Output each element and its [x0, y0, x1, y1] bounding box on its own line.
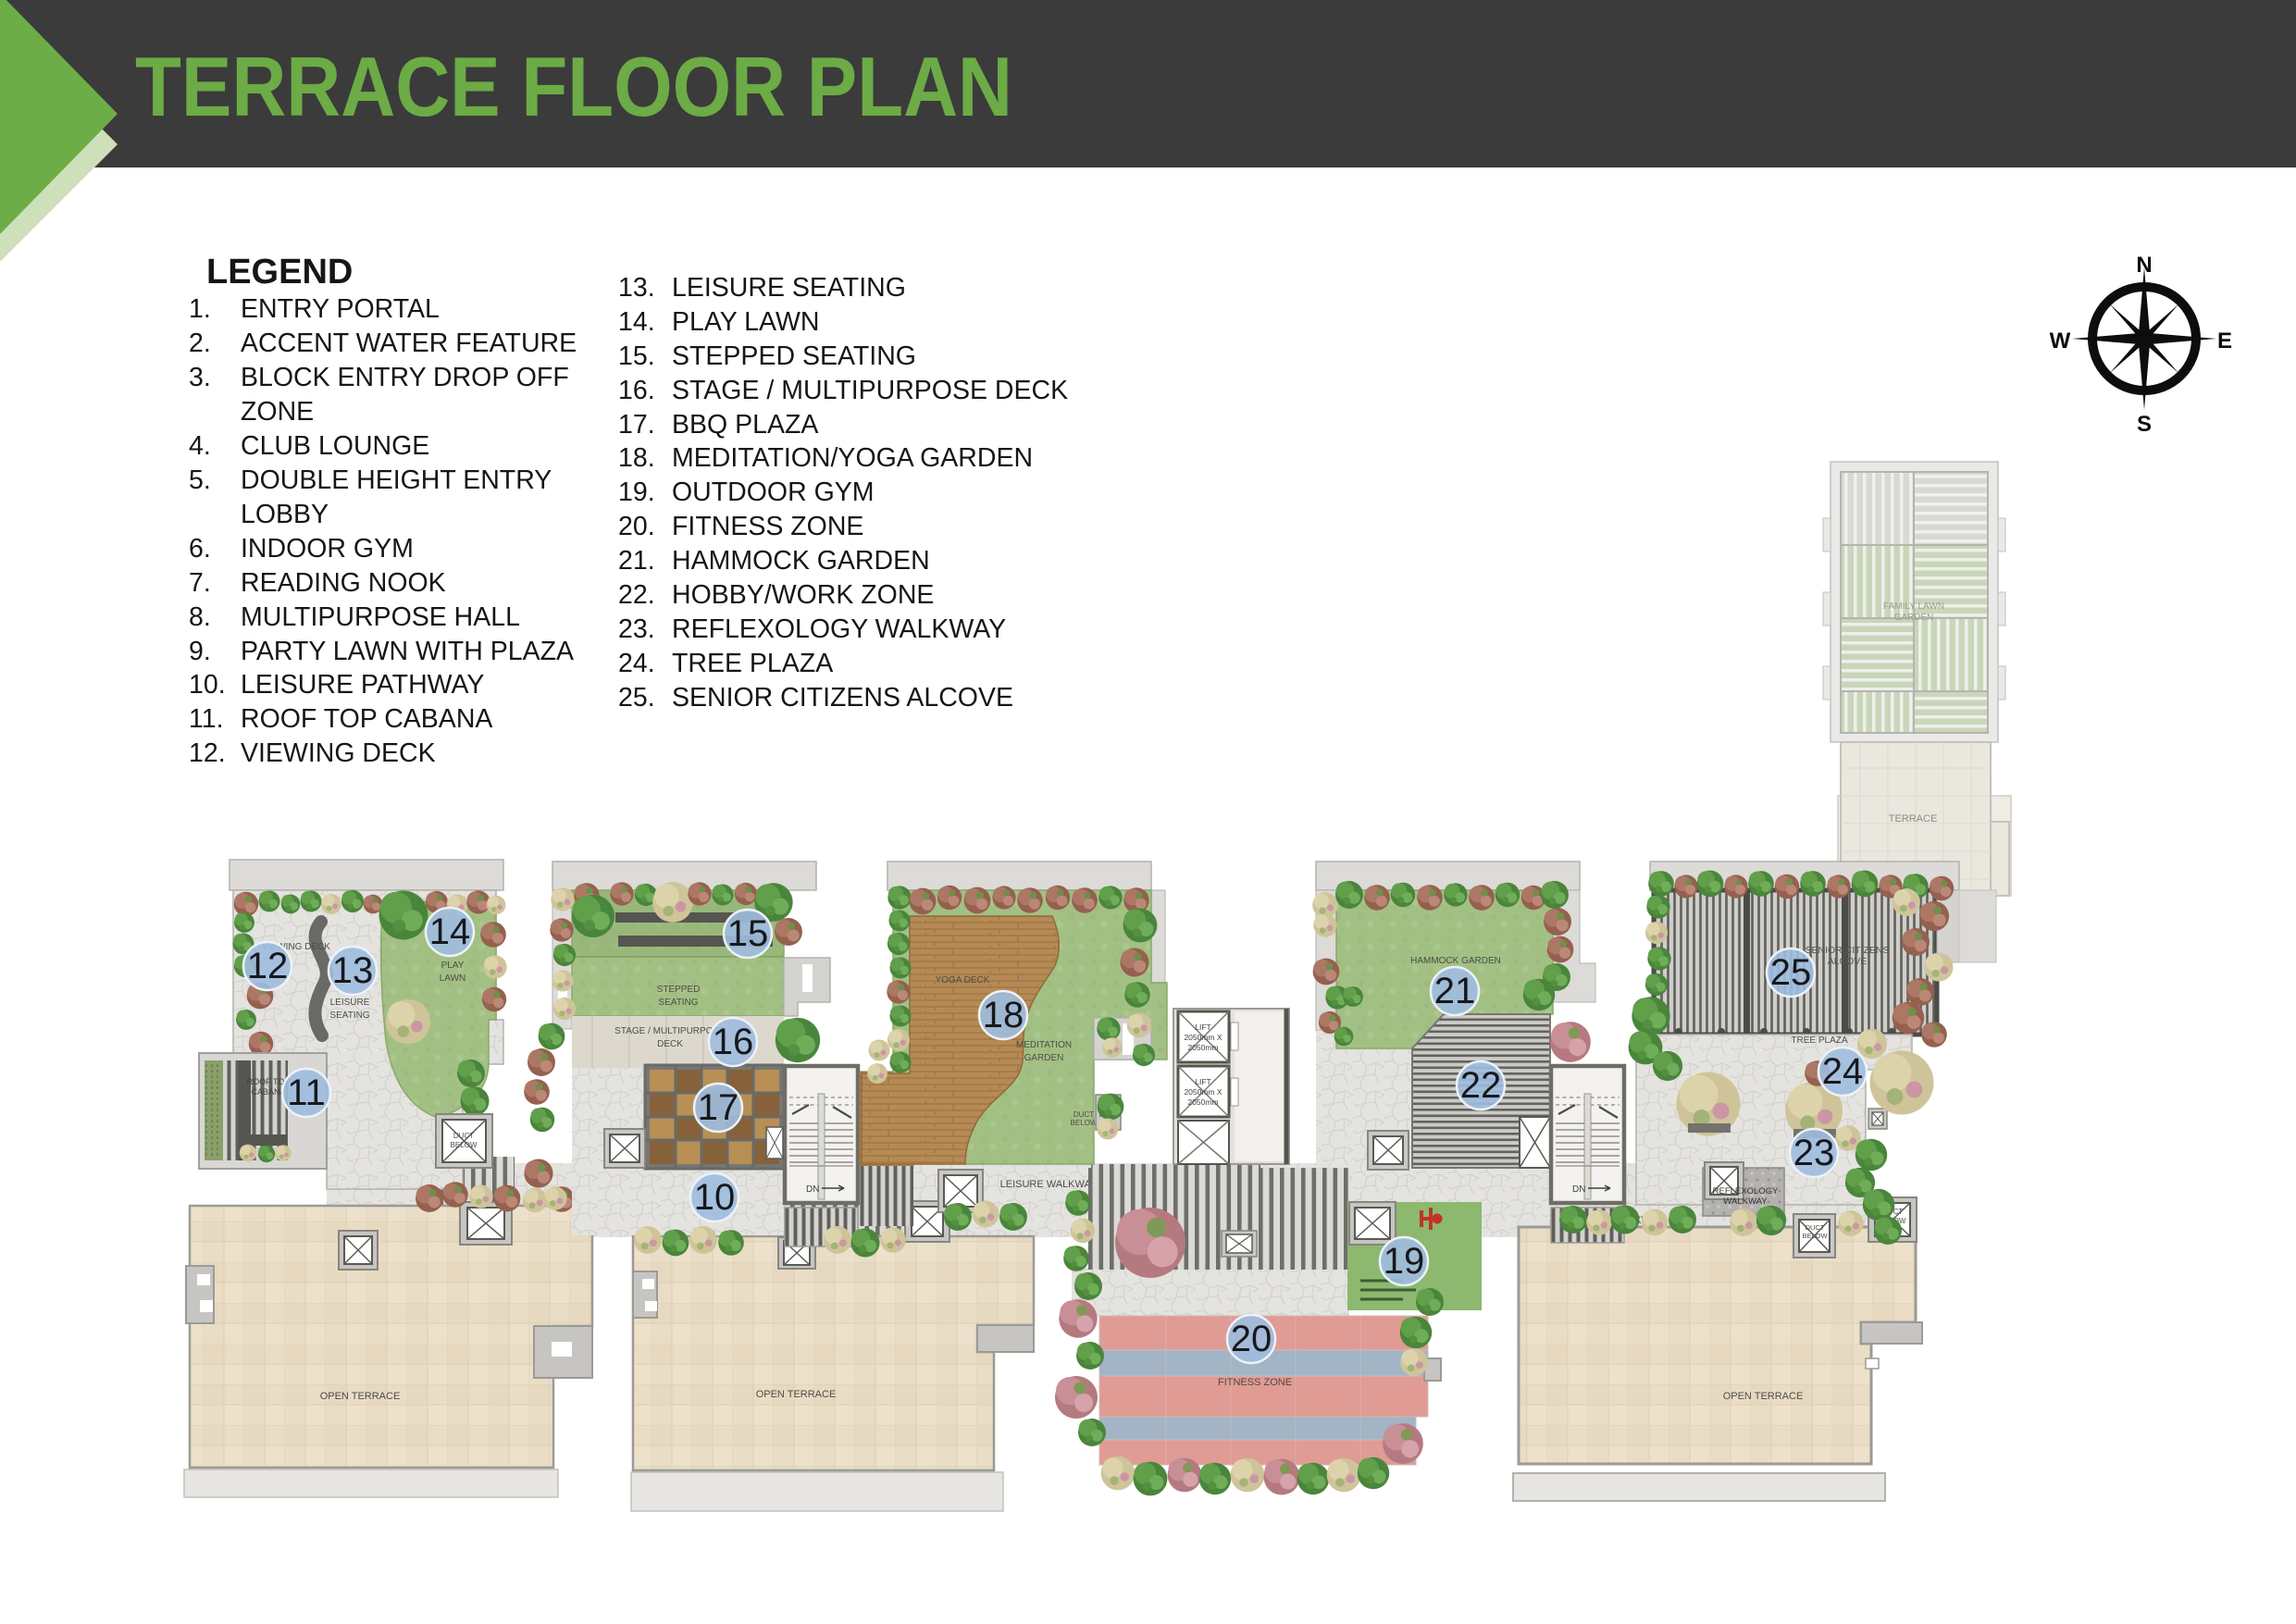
svg-text:25.: 25. — [618, 683, 655, 713]
svg-text:ALCOVE: ALCOVE — [1828, 956, 1868, 967]
svg-text:18: 18 — [983, 995, 1024, 1035]
svg-text:22.: 22. — [618, 580, 655, 610]
svg-text:17: 17 — [698, 1087, 739, 1128]
svg-text:OPEN TERRACE: OPEN TERRACE — [756, 1389, 837, 1400]
svg-text:23.: 23. — [618, 614, 655, 644]
svg-text:BLOCK ENTRY DROP OFF: BLOCK ENTRY DROP OFF — [241, 363, 569, 392]
svg-text:11: 11 — [287, 1072, 326, 1113]
svg-text:GARDEN: GARDEN — [1894, 613, 1934, 623]
svg-text:YOGA DECK: YOGA DECK — [936, 975, 990, 986]
svg-text:2050mm: 2050mm — [1187, 1043, 1218, 1052]
svg-text:8.: 8. — [189, 602, 211, 632]
svg-text:13: 13 — [332, 950, 374, 991]
svg-text:ZONE: ZONE — [241, 397, 314, 427]
svg-text:OUTDOOR GYM: OUTDOOR GYM — [672, 477, 875, 507]
svg-text:SEATING: SEATING — [329, 1010, 369, 1021]
svg-text:2050mm X: 2050mm X — [1184, 1033, 1222, 1042]
svg-text:DECK: DECK — [657, 1039, 683, 1049]
svg-text:20: 20 — [1231, 1319, 1272, 1359]
svg-text:OPEN TERRACE: OPEN TERRACE — [320, 1391, 401, 1402]
svg-text:MEDITATION: MEDITATION — [1016, 1040, 1072, 1050]
svg-text:ENTRY PORTAL: ENTRY PORTAL — [241, 294, 440, 324]
svg-text:21: 21 — [1434, 971, 1476, 1011]
svg-text:LEISURE PATHWAY: LEISURE PATHWAY — [241, 670, 484, 700]
svg-text:INDOOR GYM: INDOOR GYM — [241, 534, 414, 564]
svg-text:2050mm X: 2050mm X — [1184, 1087, 1222, 1097]
svg-text:FITNESS ZONE: FITNESS ZONE — [672, 512, 863, 541]
svg-text:MULTIPURPOSE HALL: MULTIPURPOSE HALL — [241, 602, 520, 632]
svg-text:7.: 7. — [189, 568, 211, 598]
svg-text:3.: 3. — [189, 363, 211, 392]
svg-text:LAWN: LAWN — [440, 973, 466, 984]
svg-text:GARDEN: GARDEN — [1024, 1053, 1064, 1063]
svg-text:LOBBY: LOBBY — [241, 500, 329, 529]
svg-text:DUCT: DUCT — [1806, 1223, 1825, 1232]
svg-text:SEATING: SEATING — [658, 998, 698, 1008]
svg-text:LEISURE WALKWAY: LEISURE WALKWAY — [1000, 1179, 1098, 1190]
svg-text:19: 19 — [1384, 1241, 1425, 1282]
svg-text:2050mm: 2050mm — [1187, 1097, 1218, 1107]
svg-text:14: 14 — [429, 911, 471, 952]
svg-text:11.: 11. — [189, 704, 224, 734]
svg-text:LIFT: LIFT — [1195, 1077, 1210, 1086]
svg-text:TREE PLAZA: TREE PLAZA — [672, 649, 833, 678]
svg-text:DOUBLE HEIGHT ENTRY: DOUBLE HEIGHT ENTRY — [241, 465, 552, 495]
svg-text:HAMMOCK GARDEN: HAMMOCK GARDEN — [672, 546, 930, 576]
svg-text:17.: 17. — [618, 410, 655, 440]
svg-text:BELOW: BELOW — [451, 1141, 478, 1149]
svg-text:18.: 18. — [618, 443, 655, 473]
svg-text:19.: 19. — [618, 477, 655, 507]
svg-text:LEISURE SEATING: LEISURE SEATING — [672, 273, 906, 303]
svg-text:STEPPED SEATING: STEPPED SEATING — [672, 341, 916, 371]
svg-text:STEPPED: STEPPED — [657, 985, 701, 995]
svg-text:LIFT: LIFT — [1195, 1023, 1210, 1032]
svg-text:VIEWING DECK: VIEWING DECK — [241, 738, 436, 768]
svg-text:S: S — [2137, 412, 2152, 437]
svg-text:DN: DN — [1572, 1184, 1585, 1195]
svg-text:4.: 4. — [189, 431, 211, 461]
svg-text:21.: 21. — [618, 546, 655, 576]
svg-text:24.: 24. — [618, 649, 655, 678]
svg-text:22: 22 — [1460, 1065, 1502, 1106]
svg-text:12: 12 — [247, 946, 289, 986]
svg-text:FAMILY LAWN: FAMILY LAWN — [1883, 601, 1944, 612]
svg-text:FITNESS ZONE: FITNESS ZONE — [1218, 1377, 1292, 1388]
svg-text:MEDITATION/YOGA GARDEN: MEDITATION/YOGA GARDEN — [672, 443, 1033, 473]
svg-text:PLAY: PLAY — [441, 961, 465, 971]
svg-text:15.: 15. — [618, 341, 655, 371]
svg-text:25: 25 — [1770, 952, 1812, 993]
svg-text:WALKWAY: WALKWAY — [1723, 1196, 1768, 1207]
svg-text:9.: 9. — [189, 637, 211, 666]
svg-text:15: 15 — [727, 913, 769, 954]
svg-text:STAGE / MULTIPURPOSE DECK: STAGE / MULTIPURPOSE DECK — [672, 376, 1068, 405]
svg-text:CLUB LOUNGE: CLUB LOUNGE — [241, 431, 429, 461]
svg-text:DUCT: DUCT — [1074, 1110, 1094, 1119]
svg-text:BELOW: BELOW — [1802, 1232, 1828, 1240]
svg-text:10: 10 — [694, 1177, 736, 1218]
svg-text:DN: DN — [806, 1184, 819, 1195]
svg-text:TREE PLAZA: TREE PLAZA — [1791, 1035, 1847, 1046]
svg-text:BBQ PLAZA: BBQ PLAZA — [672, 410, 818, 440]
svg-text:CABANA: CABANA — [251, 1087, 285, 1097]
svg-text:LEGEND: LEGEND — [206, 253, 353, 291]
svg-text:N: N — [2136, 253, 2152, 278]
svg-text:DUCT: DUCT — [453, 1132, 474, 1140]
svg-text:PLAY LAWN: PLAY LAWN — [672, 307, 819, 337]
svg-text:E: E — [2217, 329, 2232, 353]
svg-text:16: 16 — [713, 1022, 754, 1062]
svg-text:BELOW: BELOW — [1071, 1119, 1098, 1127]
svg-text:5.: 5. — [189, 465, 211, 495]
svg-text:24: 24 — [1822, 1051, 1864, 1092]
svg-text:16.: 16. — [618, 376, 655, 405]
svg-text:ACCENT WATER FEATURE: ACCENT WATER FEATURE — [241, 329, 577, 358]
svg-text:14.: 14. — [618, 307, 655, 337]
svg-text:HOBBY/WORK ZONE: HOBBY/WORK ZONE — [672, 580, 934, 610]
svg-text:W: W — [2050, 329, 2071, 353]
svg-text:12.: 12. — [189, 738, 226, 768]
svg-text:LEISURE: LEISURE — [330, 998, 370, 1008]
svg-text:ROOF TOP CABANA: ROOF TOP CABANA — [241, 704, 492, 734]
svg-text:REFLEXOLOGY: REFLEXOLOGY — [1713, 1186, 1779, 1196]
svg-text:READING NOOK: READING NOOK — [241, 568, 446, 598]
svg-text:20.: 20. — [618, 512, 655, 541]
svg-text:SENIOR CITIZENS ALCOVE: SENIOR CITIZENS ALCOVE — [672, 683, 1013, 713]
svg-text:TERRACE: TERRACE — [1889, 813, 1938, 824]
svg-text:1.: 1. — [189, 294, 211, 324]
svg-text:PARTY LAWN WITH PLAZA: PARTY LAWN WITH PLAZA — [241, 637, 574, 666]
svg-text:10.: 10. — [189, 670, 226, 700]
svg-text:6.: 6. — [189, 534, 211, 564]
svg-text:23: 23 — [1793, 1133, 1835, 1173]
svg-text:HAMMOCK GARDEN: HAMMOCK GARDEN — [1410, 956, 1501, 966]
svg-text:TERRACE FLOOR PLAN: TERRACE FLOOR PLAN — [135, 41, 1012, 134]
svg-text:2.: 2. — [189, 329, 211, 358]
svg-text:13.: 13. — [618, 273, 655, 303]
svg-text:REFLEXOLOGY WALKWAY: REFLEXOLOGY WALKWAY — [672, 614, 1006, 644]
svg-text:OPEN TERRACE: OPEN TERRACE — [1723, 1391, 1804, 1402]
svg-text:SENIOR CITIZENS: SENIOR CITIZENS — [1805, 945, 1889, 956]
